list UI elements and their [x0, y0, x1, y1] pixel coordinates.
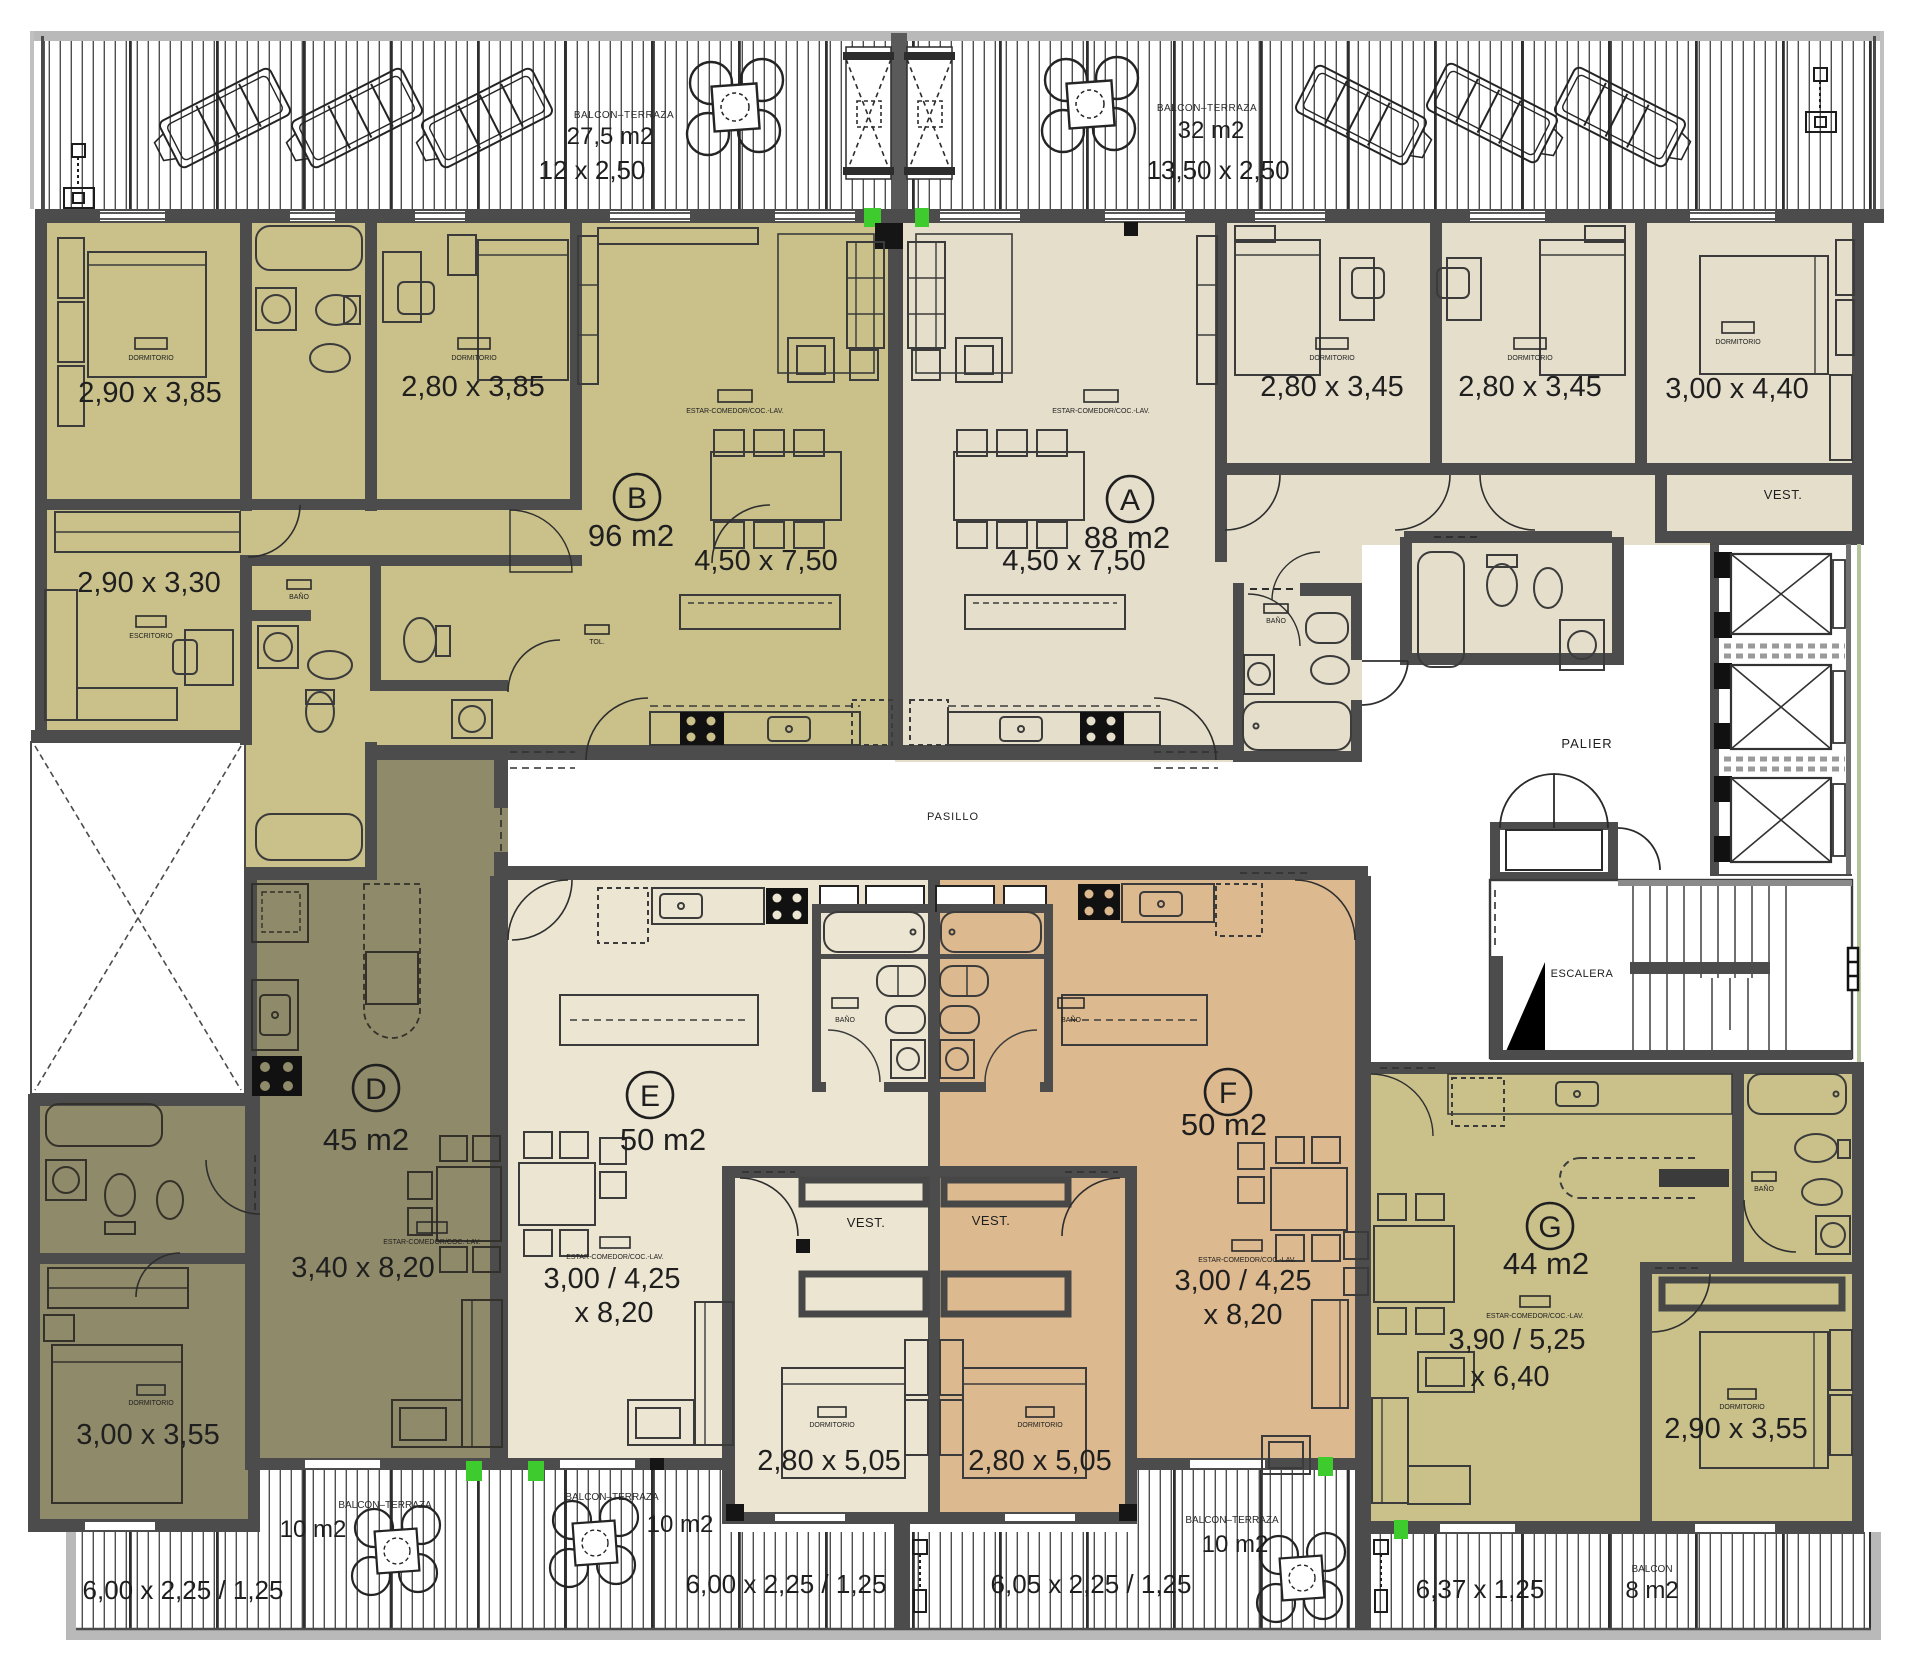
svg-text:32 m2: 32 m2: [1178, 117, 1245, 144]
svg-text:ESTAR-COMEDOR/COC.-LAV.: ESTAR-COMEDOR/COC.-LAV.: [1198, 1257, 1296, 1264]
svg-text:10 m2: 10 m2: [647, 1511, 714, 1538]
svg-text:2,80 x 3,45: 2,80 x 3,45: [1260, 371, 1404, 403]
svg-text:44 m2: 44 m2: [1503, 1246, 1589, 1281]
svg-text:27,5 m2: 27,5 m2: [567, 123, 654, 150]
svg-text:3,90 / 5,25: 3,90 / 5,25: [1448, 1324, 1585, 1356]
svg-text:3,00 / 4,25: 3,00 / 4,25: [543, 1263, 680, 1295]
svg-text:BAÑO: BAÑO: [289, 592, 309, 601]
svg-text:E: E: [640, 1080, 660, 1113]
svg-text:BALCON: BALCON: [1631, 1564, 1672, 1575]
svg-text:10 m2: 10 m2: [280, 1516, 347, 1543]
svg-text:2,80 x 5,05: 2,80 x 5,05: [757, 1445, 901, 1477]
svg-text:DORMITORIO: DORMITORIO: [1719, 1404, 1765, 1411]
svg-text:VEST.: VEST.: [1764, 487, 1803, 502]
svg-text:x 8,20: x 8,20: [1204, 1299, 1283, 1331]
svg-text:2,90 x 3,55: 2,90 x 3,55: [1664, 1413, 1808, 1445]
svg-text:ESTAR-COMEDOR/COC.-LAV.: ESTAR-COMEDOR/COC.-LAV.: [383, 1239, 481, 1246]
svg-text:x 8,20: x 8,20: [575, 1297, 654, 1329]
svg-text:3,00 x 3,55: 3,00 x 3,55: [76, 1419, 220, 1451]
svg-text:DORMITORIO: DORMITORIO: [128, 355, 174, 362]
svg-text:ESTAR-COMEDOR/COC.-LAV.: ESTAR-COMEDOR/COC.-LAV.: [1052, 408, 1150, 415]
svg-text:2,80 x 5,05: 2,80 x 5,05: [968, 1445, 1112, 1477]
svg-text:3,40 x 8,20: 3,40 x 8,20: [291, 1252, 435, 1284]
svg-text:BALCON–TERRAZA: BALCON–TERRAZA: [565, 1492, 659, 1503]
svg-text:2,90 x 3,30: 2,90 x 3,30: [77, 567, 221, 599]
svg-text:PALIER: PALIER: [1561, 736, 1612, 751]
svg-text:D: D: [365, 1073, 387, 1106]
svg-text:6,00 x 2,25 / 1,25: 6,00 x 2,25 / 1,25: [686, 1569, 887, 1599]
svg-text:F: F: [1219, 1077, 1237, 1110]
svg-text:2,90 x 3,85: 2,90 x 3,85: [78, 377, 222, 409]
svg-text:BAÑO: BAÑO: [1754, 1184, 1774, 1193]
svg-text:DORMITORIO: DORMITORIO: [128, 1400, 174, 1407]
svg-text:10 m2: 10 m2: [1202, 1531, 1269, 1558]
svg-text:BAÑO: BAÑO: [1266, 616, 1286, 625]
svg-text:ESTAR-COMEDOR/COC.-LAV.: ESTAR-COMEDOR/COC.-LAV.: [686, 408, 784, 415]
svg-text:DORMITORIO: DORMITORIO: [1309, 355, 1355, 362]
svg-text:4,50 x 7,50: 4,50 x 7,50: [694, 545, 838, 577]
svg-text:BAÑO: BAÑO: [1061, 1015, 1081, 1024]
svg-text:BALCON–TERRAZA: BALCON–TERRAZA: [338, 1500, 432, 1511]
svg-text:DORMITORIO: DORMITORIO: [451, 355, 497, 362]
svg-text:12 x 2,50: 12 x 2,50: [539, 155, 646, 185]
svg-text:6,37 x 1,25: 6,37 x 1,25: [1416, 1574, 1545, 1604]
svg-text:4,50 x 7,50: 4,50 x 7,50: [1002, 545, 1146, 577]
svg-text:ESTAR-COMEDOR/COC.-LAV.: ESTAR-COMEDOR/COC.-LAV.: [566, 1254, 664, 1261]
svg-text:6,00 x 2,25 / 1,25: 6,00 x 2,25 / 1,25: [83, 1575, 284, 1605]
svg-text:BALCON–TERRAZA: BALCON–TERRAZA: [1185, 1515, 1279, 1526]
svg-text:BALCON–TERRAZA: BALCON–TERRAZA: [574, 110, 674, 121]
svg-text:2,80 x 3,45: 2,80 x 3,45: [1458, 371, 1602, 403]
svg-text:3,00 / 4,25: 3,00 / 4,25: [1174, 1265, 1311, 1297]
svg-text:BALCON–TERRAZA: BALCON–TERRAZA: [1157, 103, 1257, 114]
svg-text:DORMITORIO: DORMITORIO: [1715, 339, 1761, 346]
svg-text:ESTAR-COMEDOR/COC.-LAV.: ESTAR-COMEDOR/COC.-LAV.: [1486, 1313, 1584, 1320]
svg-text:ESCALERA: ESCALERA: [1551, 968, 1614, 980]
svg-text:DORMITORIO: DORMITORIO: [1507, 355, 1553, 362]
svg-text:TOL.: TOL.: [589, 639, 604, 646]
svg-text:DORMITORIO: DORMITORIO: [809, 1422, 855, 1429]
svg-text:x 6,40: x 6,40: [1471, 1361, 1550, 1393]
svg-text:50 m2: 50 m2: [1181, 1107, 1267, 1142]
svg-text:VEST.: VEST.: [847, 1215, 886, 1230]
svg-text:13,50 x 2,50: 13,50 x 2,50: [1146, 155, 1289, 185]
svg-text:G: G: [1538, 1211, 1561, 1244]
svg-text:96 m2: 96 m2: [588, 518, 674, 553]
svg-text:6,05 x 2,25 / 1,25: 6,05 x 2,25 / 1,25: [991, 1569, 1192, 1599]
svg-text:2,80 x 3,85: 2,80 x 3,85: [401, 371, 545, 403]
svg-text:B: B: [627, 482, 647, 515]
svg-text:8 m2: 8 m2: [1625, 1577, 1678, 1604]
svg-text:ESCRITORIO: ESCRITORIO: [129, 633, 173, 640]
svg-text:50 m2: 50 m2: [620, 1122, 706, 1157]
svg-text:45 m2: 45 m2: [323, 1122, 409, 1157]
svg-text:DORMITORIO: DORMITORIO: [1017, 1422, 1063, 1429]
svg-text:VEST.: VEST.: [972, 1213, 1011, 1228]
svg-text:PASILLO: PASILLO: [927, 811, 979, 823]
svg-text:BAÑO: BAÑO: [835, 1015, 855, 1024]
svg-text:3,00 x 4,40: 3,00 x 4,40: [1665, 373, 1809, 405]
svg-text:A: A: [1120, 484, 1140, 517]
